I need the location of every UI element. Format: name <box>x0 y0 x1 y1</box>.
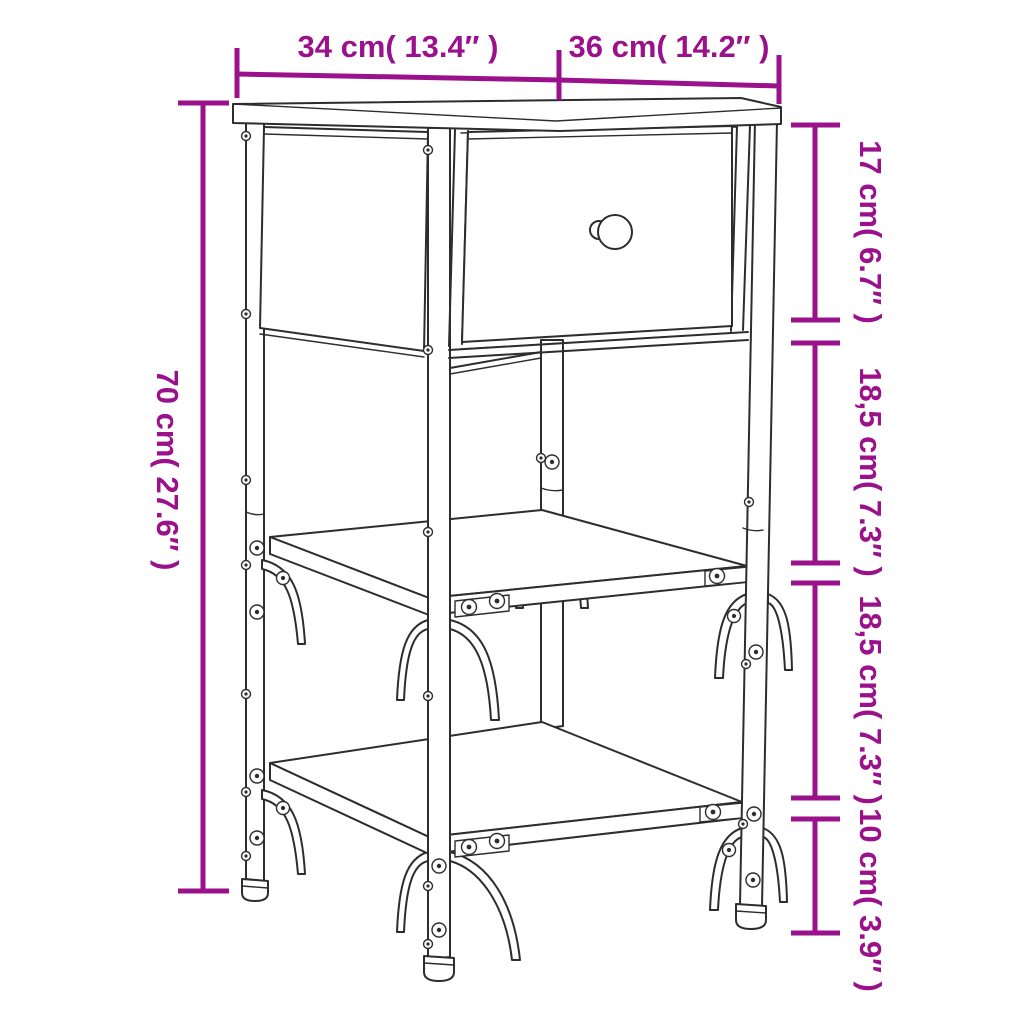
dim-label-middle-gap: 18,5 cm( 7.3″ ) <box>853 367 888 577</box>
dimension-drawer-height: 17 cm( 6.7″ ) <box>791 125 888 324</box>
dim-label-top-width: 34 cm( 13.4″ ) <box>298 29 499 64</box>
dimension-diagram: 34 cm( 13.4″ ) 36 cm( 14.2″ ) 70 cm( 27.… <box>0 0 1024 1024</box>
bottom-shelf <box>262 722 787 960</box>
drawer-front <box>462 126 732 349</box>
diagram-svg: 34 cm( 13.4″ ) 36 cm( 14.2″ ) 70 cm( 27.… <box>0 0 1024 1024</box>
furniture-line-drawing <box>233 98 792 981</box>
dimension-lower-gap: 18,5 cm( 7.3″ ) <box>791 583 888 805</box>
dim-label-top-depth: 36 cm( 14.2″ ) <box>569 29 770 64</box>
dimension-top-width: 34 cm( 13.4″ ) <box>237 29 559 100</box>
dimension-ground-clearance: 10 cm( 3.9″ ) <box>791 808 888 992</box>
dim-label-drawer-height: 17 cm( 6.7″ ) <box>853 140 888 324</box>
dim-label-overall-height: 70 cm( 27.6″ ) <box>150 370 185 571</box>
dim-label-ground-clearance: 10 cm( 3.9″ ) <box>853 808 888 992</box>
middle-shelf <box>262 510 792 720</box>
dim-label-lower-gap: 18,5 cm( 7.3″ ) <box>853 595 888 805</box>
dimension-middle-gap: 18,5 cm( 7.3″ ) <box>791 343 888 577</box>
table-top <box>233 98 781 131</box>
drawer-knob <box>598 215 632 249</box>
front-left-leg <box>424 126 454 981</box>
dimension-overall-height: 70 cm( 27.6″ ) <box>150 103 229 891</box>
dimension-top-depth: 36 cm( 14.2″ ) <box>559 29 779 104</box>
